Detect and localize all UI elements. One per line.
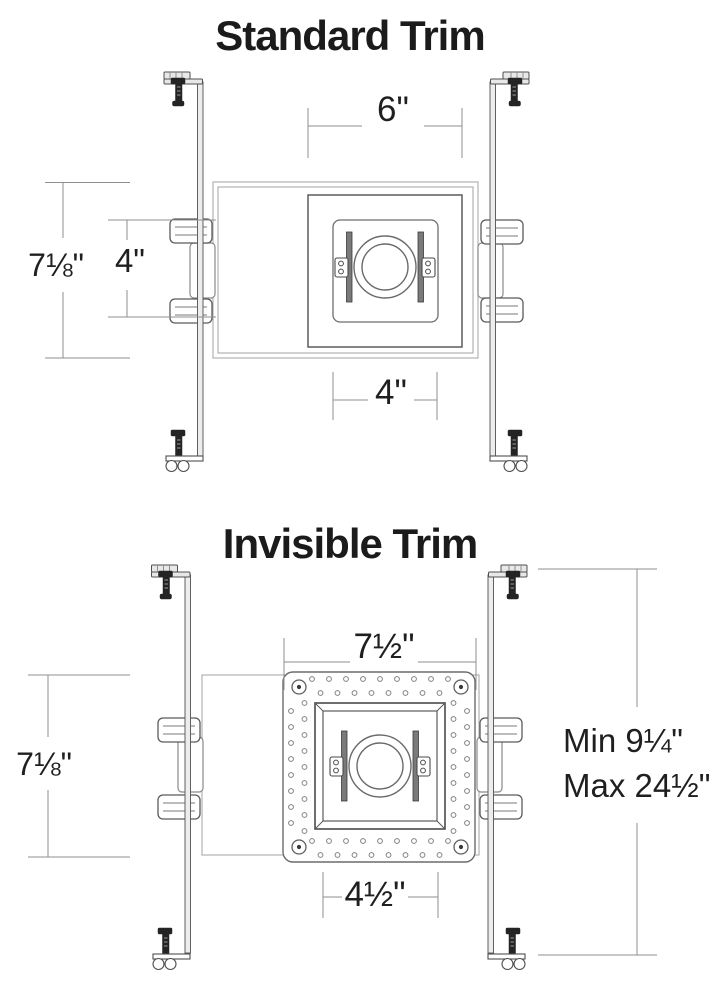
standard-trim-title: Standard Trim — [215, 12, 484, 59]
dimension-hanger-min-label: Min 9¼" — [563, 722, 683, 759]
dimension-bottom-width: 4½" — [323, 872, 438, 918]
dimension-height-label: 7⅛" — [28, 247, 84, 283]
lamp-assembly — [335, 232, 435, 302]
dimension-bottom-width: 4" — [333, 372, 437, 420]
hanger-bar-left — [164, 72, 203, 472]
hanger-bar-right — [488, 565, 527, 970]
mounting-clip-right-bottom — [481, 298, 523, 322]
dimension-inner-height-label: 4" — [115, 242, 145, 279]
hanger-bar-left — [152, 565, 191, 970]
dimension-height: 7⅛" — [16, 675, 130, 857]
mounting-clip-right-top — [481, 220, 523, 244]
mounting-clip-right-top — [480, 718, 522, 742]
mud-plate — [283, 672, 475, 862]
hanger-bar-right — [490, 72, 529, 472]
dimension-bottom-width-label: 4½" — [344, 875, 405, 914]
dimension-height-label: 7⅛" — [16, 746, 72, 782]
invisible-trim-diagram: Invisible Trim — [16, 520, 710, 970]
trim-plate — [308, 195, 462, 347]
standard-trim-diagram: Standard Trim 6" 7⅛" — [28, 12, 529, 472]
mounting-clip-left-top — [158, 718, 200, 742]
mounting-clip-left-bottom — [158, 795, 200, 819]
recessed-light-install-diagram: Standard Trim 6" 7⅛" — [0, 0, 712, 990]
dimension-hanger-extension: Min 9¼" Max 24½" — [538, 569, 710, 955]
dimension-top-width-label: 6" — [377, 90, 409, 129]
dimension-bottom-width-label: 4" — [375, 373, 407, 412]
dimension-hanger-max-label: Max 24½" — [563, 767, 710, 804]
dimension-top-width: 6" — [308, 90, 462, 158]
mounting-clip-left-bottom — [170, 299, 212, 323]
dimension-top-width-label: 7½" — [353, 627, 414, 666]
mounting-clip-left-top — [170, 219, 212, 243]
invisible-trim-title: Invisible Trim — [223, 520, 477, 567]
mounting-clip-right-bottom — [480, 795, 522, 819]
